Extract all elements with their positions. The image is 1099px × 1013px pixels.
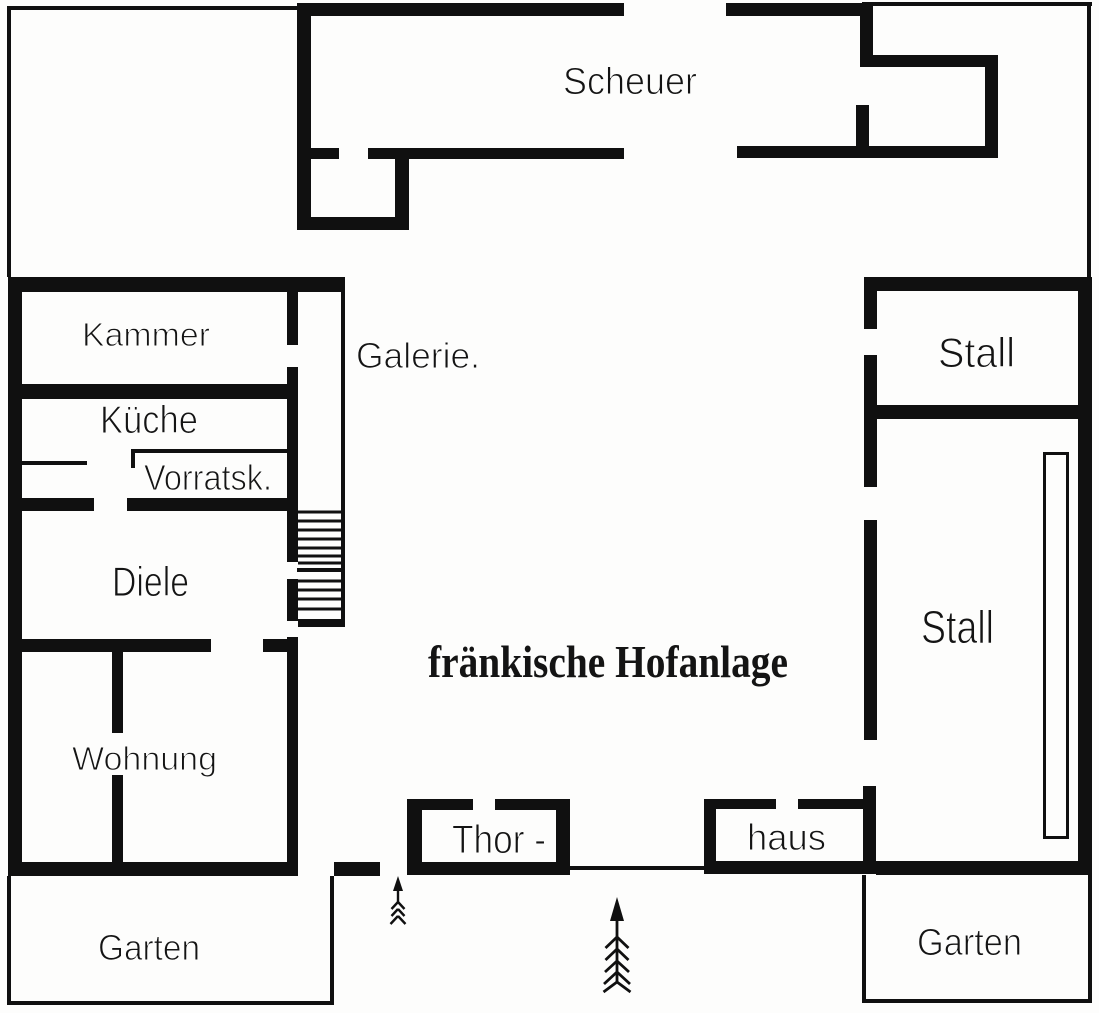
svg-text:Wohnung: Wohnung (72, 740, 217, 777)
svg-text:Küche: Küche (100, 399, 198, 442)
svg-text:Scheuer: Scheuer (563, 61, 697, 103)
svg-text:fränkische Hofanlage: fränkische Hofanlage (428, 636, 788, 687)
svg-text:Thor -: Thor - (452, 818, 546, 862)
svg-text:Vorratsk.: Vorratsk. (144, 457, 272, 498)
svg-text:Garten: Garten (917, 922, 1022, 964)
svg-text:Galerie.: Galerie. (356, 335, 480, 376)
svg-text:Garten: Garten (98, 927, 200, 968)
svg-text:Stall: Stall (921, 601, 994, 653)
svg-text:haus: haus (747, 817, 826, 858)
svg-text:Kammer: Kammer (82, 316, 210, 353)
svg-text:Stall: Stall (938, 329, 1015, 376)
svg-text:Diele: Diele (112, 558, 189, 605)
